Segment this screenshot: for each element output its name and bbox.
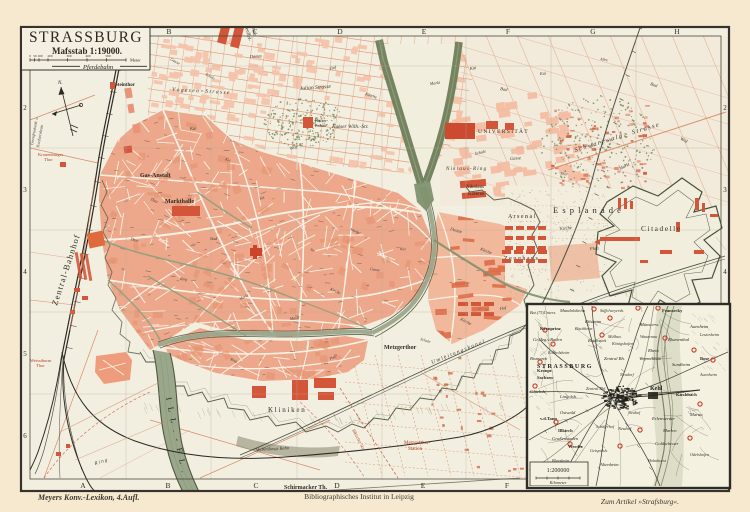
svg-text:2: 2 [723, 104, 727, 112]
svg-text:3: 3 [723, 186, 727, 194]
svg-text:0: 0 [29, 54, 31, 58]
svg-text:Auenheim: Auenheim [699, 372, 717, 377]
svg-text:3: 3 [23, 186, 27, 194]
svg-text:Münsterw.: Münsterw. [639, 322, 659, 327]
svg-text:U N I V E R S I T Ä T: U N I V E R S I T Ä T [478, 128, 528, 135]
svg-text:Süffelweyersh.: Süffelweyersh. [600, 308, 624, 313]
svg-text:Kai: Kai [539, 71, 547, 77]
svg-text:C: C [253, 481, 258, 490]
svg-text:E s p l a n a d e: E s p l a n a d e [553, 205, 622, 215]
svg-text:Reichstett: Reichstett [587, 338, 607, 343]
svg-text:Marlen: Marlen [662, 428, 677, 433]
svg-text:4: 4 [723, 268, 727, 276]
svg-text:Ring: Ring [179, 277, 188, 282]
svg-text:Sundheim: Sundheim [672, 362, 691, 367]
svg-text:Pferdebahn: Pferdebahn [82, 64, 113, 71]
svg-text:Graßenstaden: Graßenstaden [552, 436, 579, 441]
svg-text:Glücksh.: Glücksh. [530, 389, 546, 394]
svg-text:Auenheim: Auenheim [689, 324, 709, 329]
svg-text:Citadelle: Citadelle [641, 224, 682, 233]
svg-text:Neudorf: Neudorf [619, 372, 635, 377]
svg-text:Zentral Bhf.: Zentral Bhf. [586, 386, 606, 391]
svg-text:Leutesheim: Leutesheim [699, 332, 719, 337]
svg-text:Blumenthal: Blumenthal [668, 337, 690, 342]
svg-text:Steinthor: Steinthor [115, 83, 136, 88]
svg-text:Kaiser Wilh.-Str.: Kaiser Wilh.-Str. [331, 124, 369, 130]
svg-text:Marau: Marau [689, 412, 703, 417]
svg-text:Zum Artikel »Strafsburg«.: Zum Artikel »Strafsburg«. [601, 497, 679, 506]
svg-text:Kronprinz: Kronprinz [540, 326, 561, 331]
svg-text:D: D [334, 481, 340, 490]
svg-text:D: D [337, 27, 343, 36]
svg-text:Station: Station [408, 447, 423, 452]
svg-text:300: 300 [66, 54, 71, 58]
svg-text:4: 4 [23, 268, 27, 276]
svg-text:Palast: Palast [315, 123, 326, 128]
svg-text:Thor: Thor [44, 157, 53, 162]
svg-text:Fransecky: Fransecky [662, 308, 683, 313]
svg-text:Altenheim: Altenheim [599, 462, 619, 467]
svg-text:Bischheim: Bischheim [575, 326, 592, 331]
svg-text:Bibliographisches Institut in: Bibliographisches Institut in Leipzig [304, 492, 414, 501]
svg-text:Neuhof: Neuhof [617, 426, 632, 431]
svg-text:Kehl: Kehl [650, 386, 663, 392]
svg-text:Erlenwerder: Erlenwerder [651, 416, 675, 421]
svg-text:C: C [252, 27, 257, 36]
svg-text:Werder: Werder [568, 444, 583, 449]
svg-text:Markthalle: Markthalle [165, 199, 194, 205]
svg-text:Kaserne: Kaserne [468, 192, 485, 197]
svg-text:Mülhsn.: Mülhsn. [607, 334, 622, 339]
svg-text:Meyers Konv.-Lexikon, 4.Aufl.: Meyers Konv.-Lexikon, 4.Aufl. [37, 493, 139, 502]
svg-text:STRASSBURG: STRASSBURG [29, 29, 143, 46]
svg-text:B: B [166, 27, 171, 36]
svg-text:Eckbolsheim: Eckbolsheim [547, 350, 569, 355]
svg-text:Odelshofen: Odelshofen [690, 452, 709, 457]
svg-text:Lingolsh.: Lingolsh. [559, 394, 577, 399]
svg-text:A: A [80, 481, 86, 490]
svg-text:Zentral Bh.: Zentral Bh. [604, 356, 625, 361]
svg-text:Meter: Meter [130, 58, 141, 63]
svg-text:Bilsheim: Bilsheim [585, 319, 602, 324]
svg-text:Platz: Platz [589, 246, 600, 252]
svg-text:H: H [674, 27, 680, 36]
svg-text:A r s e n a l: A r s e n a l [508, 214, 536, 220]
svg-text:Gasse: Gasse [510, 155, 521, 161]
svg-text:Ruprechtsau: Ruprechtsau [639, 356, 661, 361]
svg-text:Metzgerthor-: Metzgerthor- [404, 441, 431, 446]
svg-text:Geispolsh.: Geispolsh. [590, 448, 608, 453]
svg-text:STRASSBURG: STRASSBURG [537, 364, 593, 370]
svg-text:B: B [165, 481, 170, 490]
svg-text:E: E [421, 481, 426, 490]
svg-text:Sachsen: Sachsen [537, 375, 553, 380]
svg-text:400: 400 [85, 54, 90, 58]
svg-text:Mundolsheim: Mundolsheim [559, 308, 586, 313]
svg-text:Kilometer: Kilometer [549, 480, 567, 485]
svg-text:Goldscheuer: Goldscheuer [655, 441, 679, 446]
svg-text:Neuhof: Neuhof [627, 410, 641, 415]
svg-text:v.d.Tann: v.d.Tann [540, 416, 557, 421]
svg-text:Hohnhurst: Hohnhurst [647, 458, 667, 463]
svg-text:Kirchbach: Kirchbach [676, 392, 697, 397]
svg-text:1:200000: 1:200000 [547, 468, 570, 474]
svg-text:6: 6 [23, 432, 27, 440]
svg-text:E: E [422, 27, 427, 36]
svg-text:Kai: Kai [399, 247, 406, 251]
svg-text:G: G [590, 27, 596, 36]
svg-text:Schäferhof: Schäferhof [596, 424, 615, 429]
svg-text:500: 500 [105, 54, 110, 58]
svg-text:Königshofen: Königshofen [611, 341, 633, 346]
svg-text:Ostwald: Ostwald [560, 410, 576, 415]
svg-text:Damm: Damm [249, 53, 262, 59]
svg-text:5: 5 [23, 350, 27, 358]
svg-text:F: F [506, 27, 510, 36]
svg-text:100: 100 [37, 54, 42, 58]
svg-text:Thor: Thor [36, 363, 45, 368]
svg-text:Bismarck: Bismarck [530, 356, 548, 361]
svg-text:Wanzenau: Wanzenau [640, 334, 657, 339]
svg-text:K l i n i k e n: K l i n i k e n [268, 406, 305, 414]
svg-text:Thor: Thor [560, 171, 568, 176]
svg-text:F: F [505, 481, 509, 490]
svg-text:Nikolaus: Nikolaus [466, 185, 484, 190]
svg-text:Illkirch: Illkirch [558, 428, 573, 433]
svg-text:Kai: Kai [189, 126, 198, 131]
svg-text:Metzgerthor: Metzgerthor [384, 345, 417, 351]
svg-text:Bose: Bose [700, 356, 709, 361]
svg-text:N.: N. [57, 81, 63, 86]
svg-text:200: 200 [47, 54, 52, 58]
svg-text:2: 2 [23, 104, 27, 112]
svg-text:Bat.(75)Unters.: Bat.(75)Unters. [530, 310, 556, 315]
svg-text:Gas-Anstalt: Gas-Anstalt [140, 173, 171, 179]
svg-text:Gr.Hzg.v.Baden: Gr.Hzg.v.Baden [533, 337, 563, 342]
svg-text:Rhein: Rhein [647, 348, 659, 353]
svg-text:50: 50 [33, 54, 37, 58]
